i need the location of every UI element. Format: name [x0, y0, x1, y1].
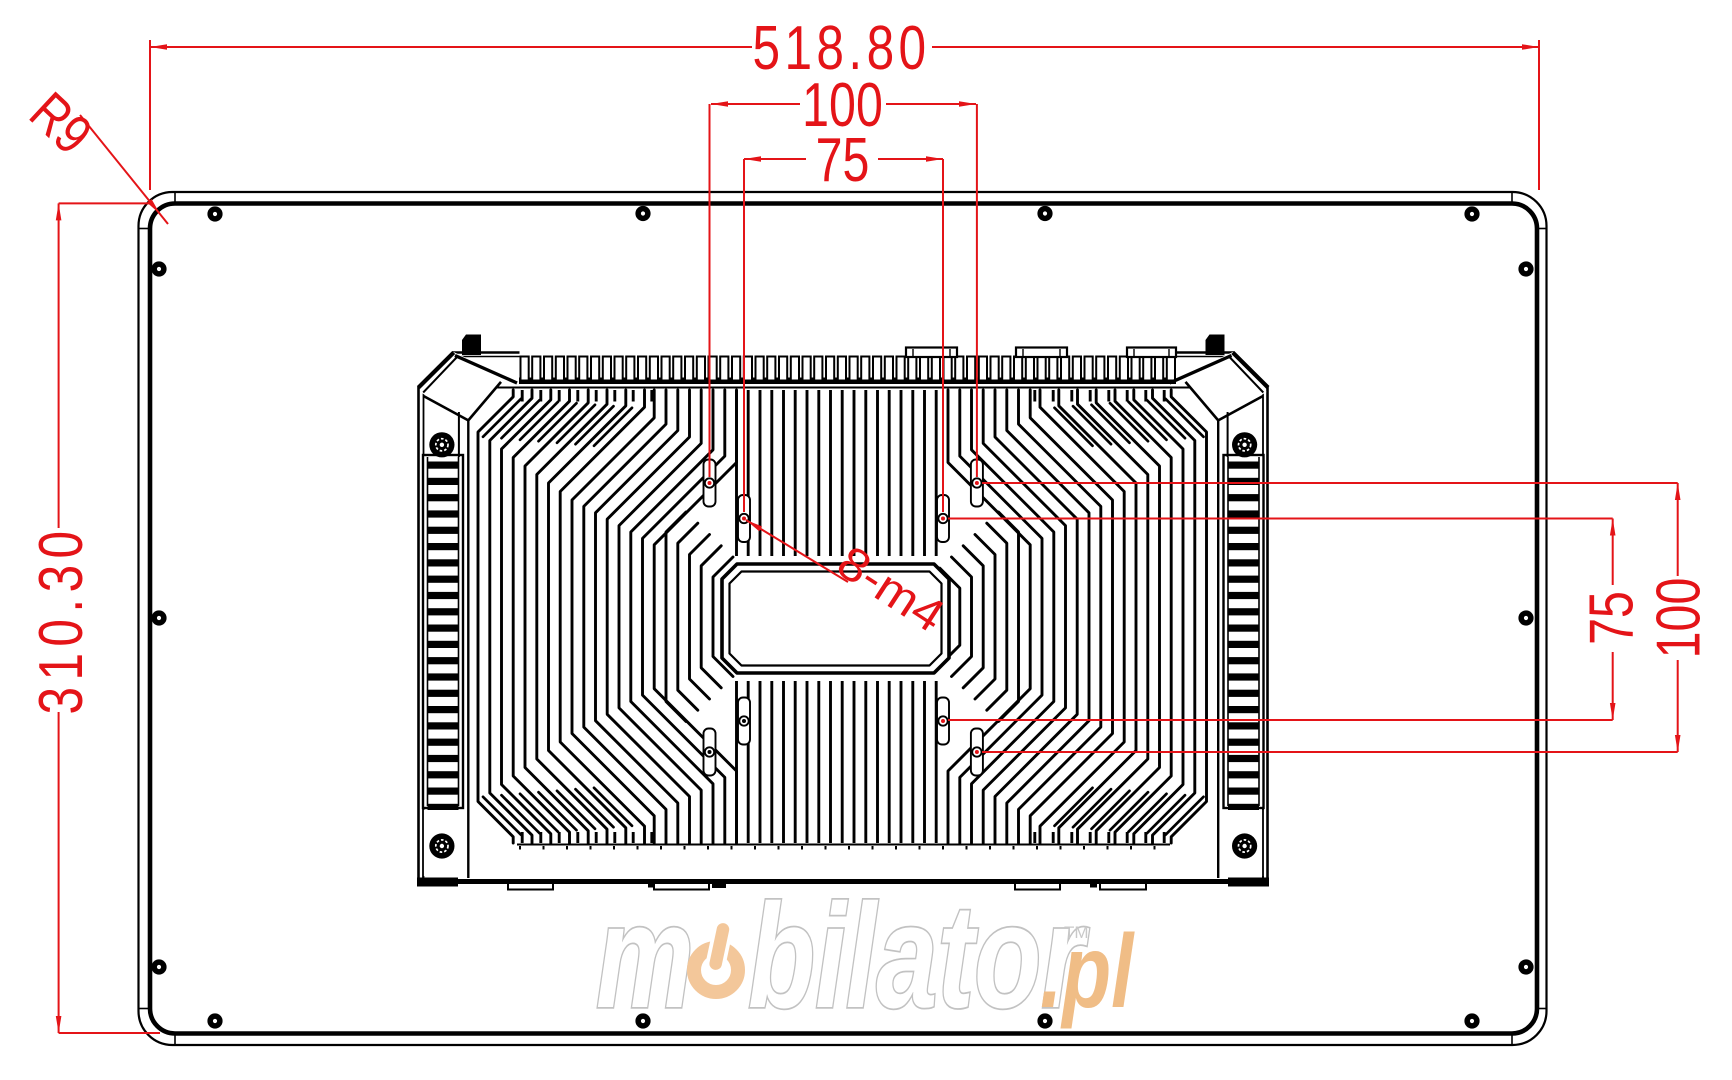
svg-text:75: 75	[816, 125, 870, 194]
svg-text:TM: TM	[1064, 923, 1089, 942]
svg-text:310.30: 310.30	[26, 524, 96, 714]
svg-text:bilator: bilator	[748, 873, 1089, 1039]
svg-text:75: 75	[1577, 591, 1646, 645]
svg-text:100: 100	[1644, 578, 1713, 659]
